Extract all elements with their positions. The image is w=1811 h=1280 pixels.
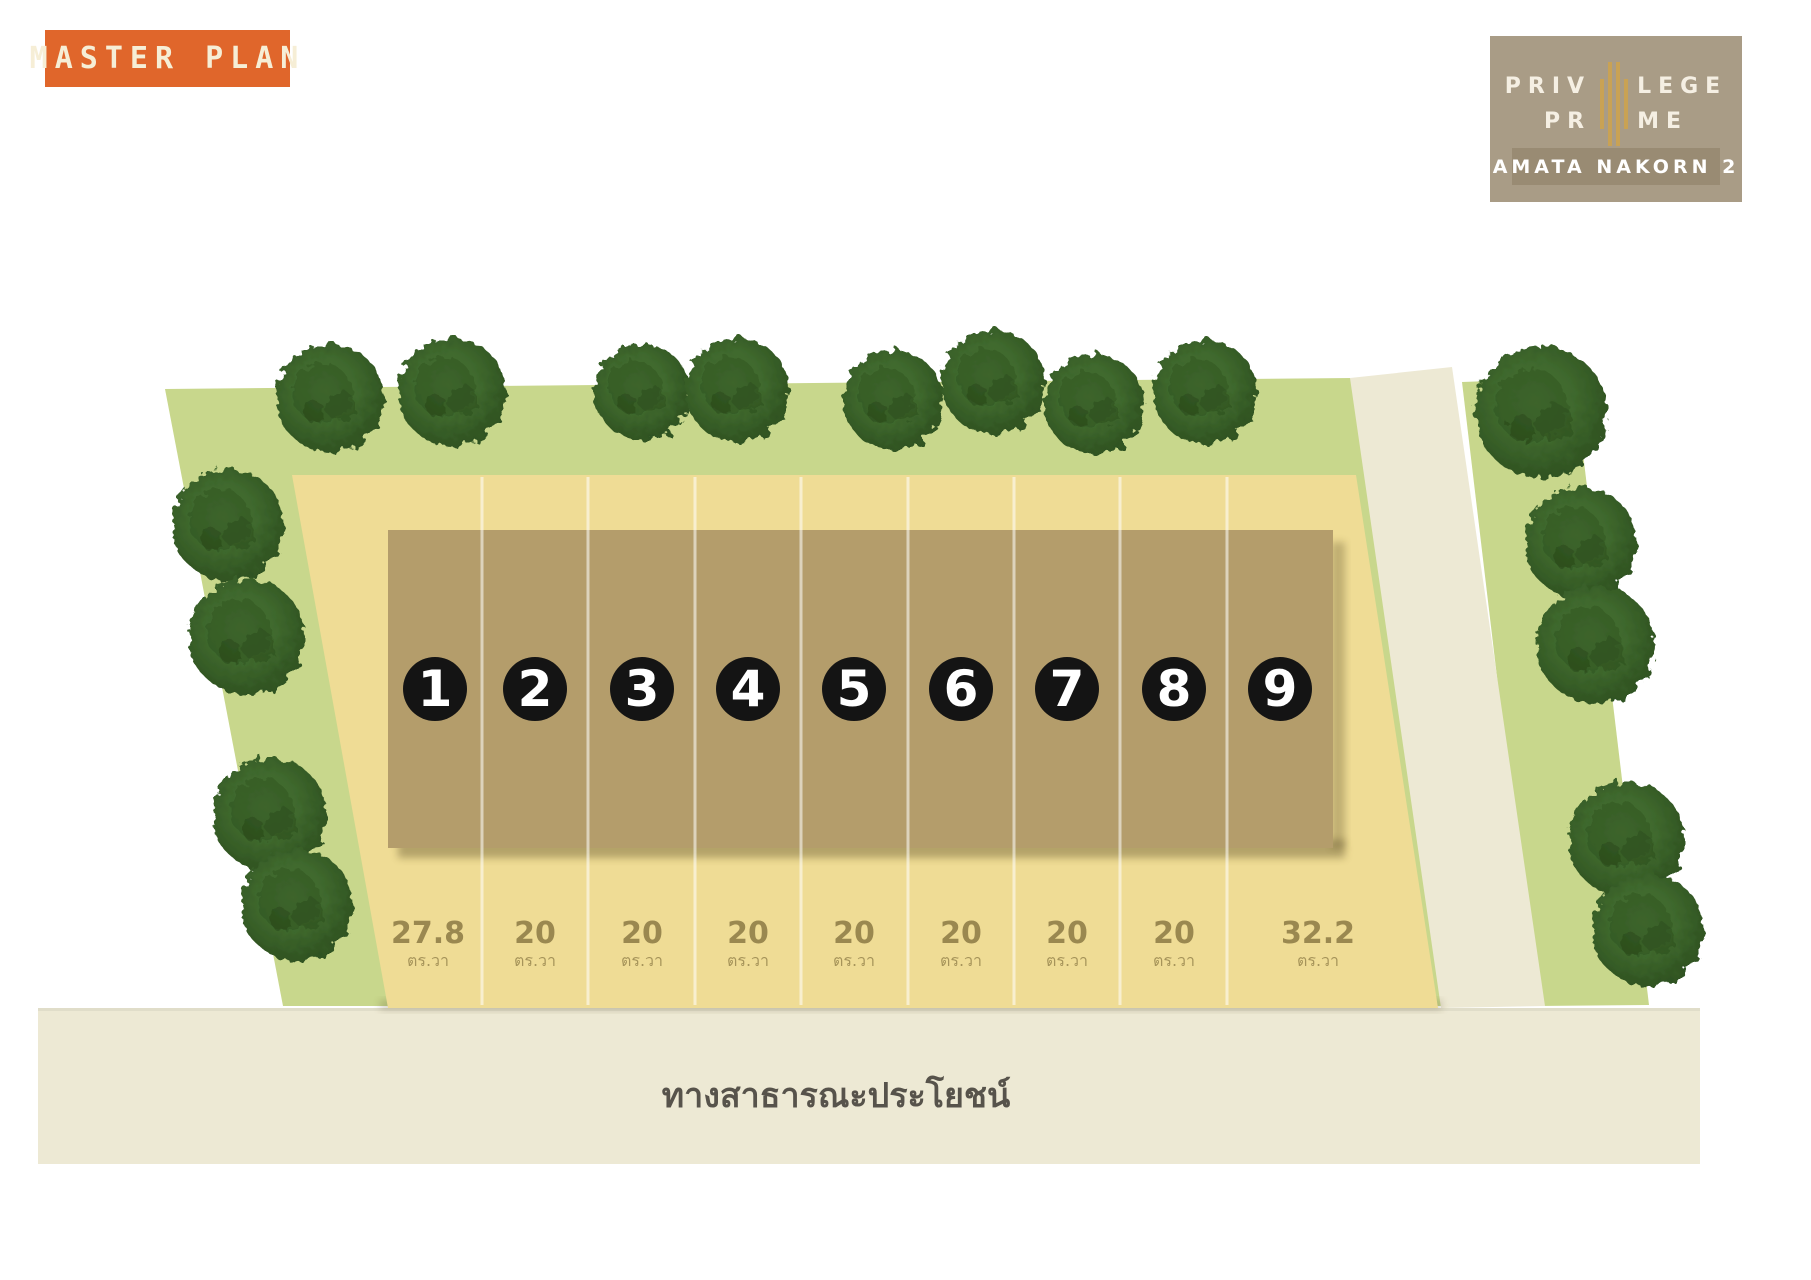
plot-number-marker: 5 [822, 657, 886, 721]
logo-line1-right: LEGE [1637, 74, 1727, 100]
tree-icon [189, 579, 305, 695]
tree-icon [1044, 354, 1144, 454]
tree-icon [1153, 340, 1257, 444]
plot-number: 1 [418, 664, 453, 714]
plot-area-label: 32.2 ตร.วา [1253, 918, 1383, 971]
plot-number: 6 [944, 664, 979, 714]
tree-icon [1592, 874, 1704, 986]
plot-area-value: 32.2 [1253, 918, 1383, 950]
building-shadow-right [1331, 542, 1345, 848]
public-road-label: ทางสาธารณะประโยชน์ [536, 1068, 1136, 1122]
plot-number-marker: 2 [503, 657, 567, 721]
plot-area-unit: ตร.วา [1109, 951, 1239, 971]
plot-number: 5 [837, 664, 872, 714]
plot-number-marker: 9 [1248, 657, 1312, 721]
tree-icon [398, 338, 506, 446]
plot-number: 9 [1263, 664, 1298, 714]
plot-number: 4 [731, 664, 766, 714]
master-plan-badge: MASTER PLAN [45, 30, 290, 87]
plot-area-value: 20 [1109, 918, 1239, 950]
logo-line1-left: PRIV [1505, 74, 1591, 100]
plot-number-marker: 1 [403, 657, 467, 721]
plot-area-label: 20 ตร.วา [1109, 918, 1239, 971]
logo-pillars-icon [1600, 62, 1628, 146]
logo-wordmark-left: PRIV PR [1505, 74, 1591, 135]
tree-icon [1475, 346, 1607, 478]
tree-icon [1525, 487, 1637, 599]
tree-icon [172, 469, 284, 581]
master-plan-badge-label: MASTER PLAN [30, 41, 306, 76]
tree-icon [941, 330, 1045, 434]
plot-number-marker: 8 [1142, 657, 1206, 721]
plot-number: 3 [625, 664, 660, 714]
tree-icon [1537, 586, 1655, 704]
master-plan-canvas: MASTER PLAN PRIV PR LEGE ME AMATA NAKORN… [0, 0, 1811, 1280]
plot-number-marker: 7 [1035, 657, 1099, 721]
plot-number-marker: 4 [716, 657, 780, 721]
tree-icon [594, 344, 690, 440]
logo-project-band: AMATA NAKORN 2 [1512, 148, 1720, 185]
logo-line2-right: ME [1637, 109, 1688, 135]
tree-icon [843, 350, 943, 450]
logo-wordmark: PRIV PR LEGE ME [1490, 62, 1742, 146]
logo-line2-left: PR [1544, 109, 1591, 135]
plot-area-unit: ตร.วา [1253, 951, 1383, 971]
logo-project-name: AMATA NAKORN 2 [1493, 156, 1740, 178]
plot-number-marker: 6 [929, 657, 993, 721]
plot-number: 7 [1050, 664, 1085, 714]
tree-icon [685, 338, 789, 442]
plot-number: 8 [1157, 664, 1192, 714]
brand-logo: PRIV PR LEGE ME AMATA NAKORN 2 [1490, 36, 1742, 202]
plot-number-marker: 3 [610, 657, 674, 721]
tree-icon [276, 344, 384, 452]
plot-number: 2 [518, 664, 553, 714]
tree-icon [241, 849, 353, 961]
logo-wordmark-right: LEGE ME [1637, 74, 1727, 135]
